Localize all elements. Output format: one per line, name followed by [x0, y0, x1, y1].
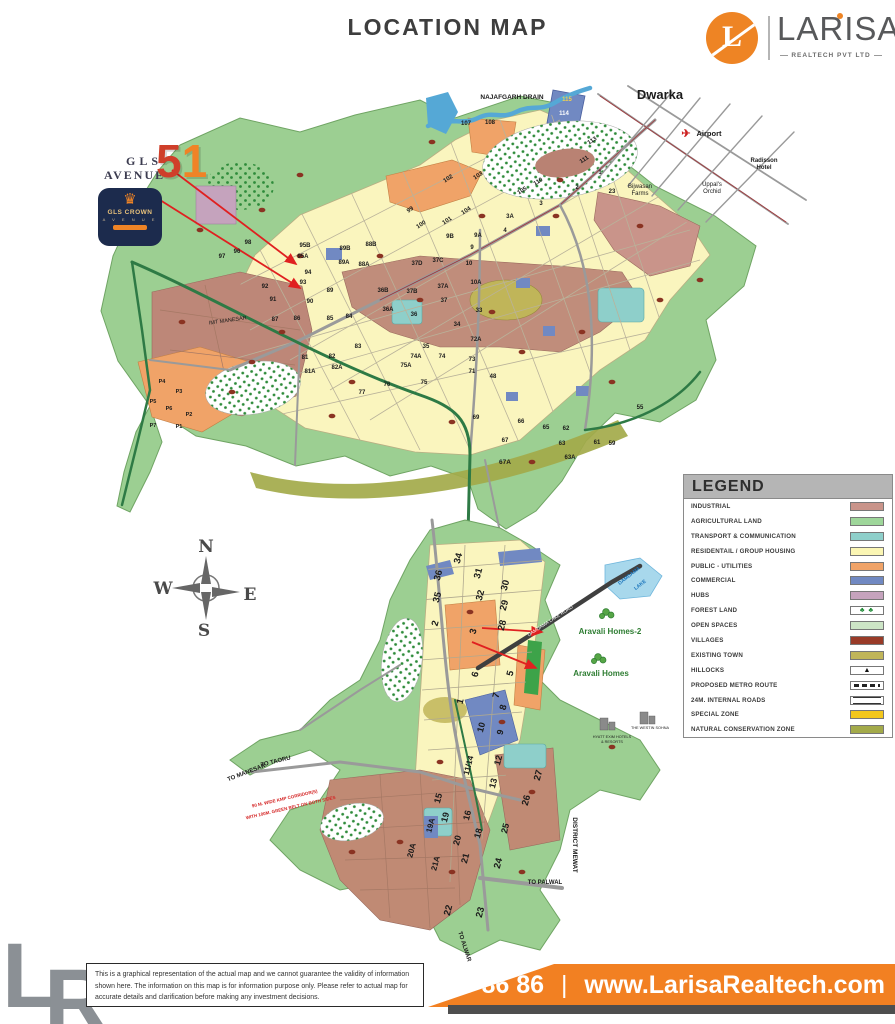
legend-row: TRANSPORT & COMMUNICATION [684, 529, 892, 544]
legend-label: TRANSPORT & COMMUNICATION [691, 533, 796, 540]
village-mark [429, 140, 436, 145]
map-label: 37B [406, 289, 418, 295]
map-label: 48 [490, 374, 497, 380]
map-label: 75 [421, 380, 428, 386]
map-label: 95B [299, 243, 311, 249]
village-mark [377, 254, 384, 259]
village-mark [437, 760, 444, 765]
map-label: 88B [365, 242, 377, 248]
map-label: 59 [609, 441, 616, 447]
legend-swatch-color [850, 502, 884, 511]
brand-tagline: REALTECH PVT LTD [791, 52, 870, 59]
map-label: 75A [400, 363, 412, 369]
crown-sub: A V E N U E [98, 217, 162, 222]
village-mark [529, 460, 536, 465]
village-mark [579, 330, 586, 335]
map-label: P6 [166, 406, 173, 412]
map-label: 90 [307, 299, 314, 305]
map-label: & RESORTS [601, 740, 623, 744]
legend-label: EXISTING TOWN [691, 652, 743, 659]
legend-swatch-color [850, 532, 884, 541]
legend-label: HUBS [691, 592, 709, 599]
crown-title: GLS CROWN [98, 209, 162, 216]
legend-row: NATURAL CONSERVATION ZONE [684, 722, 892, 737]
legend-label: PUBLIC - UTILITIES [691, 563, 752, 570]
location-map-flyer: { "header": { "title": "LOCATION MAP" },… [0, 0, 895, 1024]
map-label: 67 [502, 438, 509, 444]
map-label: 63A [564, 455, 576, 461]
map-label: 69 [473, 415, 480, 421]
contact-separator: | [561, 971, 568, 999]
legend-label: SPECIAL ZONE [691, 711, 739, 718]
map-label: Bijwasan [628, 184, 652, 190]
map-label: 76 [384, 382, 391, 388]
village-mark [609, 380, 616, 385]
map-label: S [198, 621, 210, 641]
map-label: 36 [411, 312, 418, 318]
village-mark [697, 278, 704, 283]
village-mark [657, 298, 664, 303]
map-label: 89 [327, 288, 334, 294]
legend-label: 24M. INTERNAL ROADS [691, 697, 766, 704]
map-label: 91 [270, 297, 277, 303]
village-mark [417, 298, 424, 303]
map-label: 37 [441, 298, 448, 304]
legend-swatch-color [850, 651, 884, 660]
legend-label: NATURAL CONSERVATION ZONE [691, 726, 795, 733]
map-label: 34 [454, 322, 461, 328]
map-label: 73 [469, 357, 476, 363]
map-label: 36A [382, 307, 394, 313]
legend-row: INDUSTRIAL [684, 499, 892, 514]
map-label: 72A [470, 337, 482, 343]
gls-crown-badge: ♛ GLS CROWN A V E N U E [98, 188, 162, 246]
map-label: 37A [437, 284, 449, 290]
village-mark [349, 850, 356, 855]
legend-row: OPEN SPACES [684, 618, 892, 633]
legend-label: FOREST LAND [691, 607, 737, 614]
legend-row: HILLOCKS▲ [684, 663, 892, 678]
legend-swatch-color [850, 636, 884, 645]
map-label: 23 [609, 189, 616, 195]
brand-i-dot [837, 13, 843, 19]
legend-swatch-hillock: ▲ [850, 666, 884, 675]
village-mark [479, 214, 486, 219]
map-label: 77 [359, 390, 366, 396]
map-label: 83 [355, 344, 362, 350]
legend-label: AGRICULTURAL LAND [691, 518, 762, 525]
map-label: 10 [466, 261, 473, 267]
legend-row: COMMERCIAL [684, 573, 892, 588]
map-label: P7 [150, 423, 157, 429]
legend-swatch-forest: ♣ ♣ [850, 606, 884, 615]
website-url: www.LarisaRealtech.com [584, 971, 885, 999]
map-label: P3 [176, 389, 183, 395]
legend-row: VILLAGES [684, 633, 892, 648]
village-mark [609, 745, 616, 750]
map-label: 89A [338, 260, 350, 266]
map-label: Dwarka [637, 87, 684, 102]
map-label: 37C [432, 258, 444, 264]
village-mark [329, 414, 336, 419]
map-label: 71 [469, 369, 476, 375]
map-label: P4 [159, 379, 167, 385]
map-label: Aravali Homes [573, 669, 629, 678]
map-label: 87 [272, 317, 279, 323]
legend-swatch-color [850, 621, 884, 630]
map-label: THE WESTIN SOHNA [631, 726, 669, 730]
map-label: ✈ [681, 128, 690, 140]
map-label: DISTRICT MEWAT [571, 817, 578, 873]
map-label: 115 [562, 97, 572, 103]
map-label: 96 [234, 249, 241, 255]
map-label: 86 [294, 316, 301, 322]
map-label: 9A [474, 233, 482, 239]
map-label: P1 [176, 424, 183, 430]
legend-label: OPEN SPACES [691, 622, 737, 629]
village-mark [449, 420, 456, 425]
map-label: Radisson [750, 158, 777, 164]
village-mark [297, 173, 304, 178]
gls-projects-logo: GLS AVENUE 51 ♛ GLS CROWN A V E N U E [98, 142, 208, 250]
village-mark [519, 870, 526, 875]
village-mark [557, 178, 564, 183]
map-label: P2 [186, 412, 193, 418]
map-label: 81A [304, 369, 316, 375]
map-label: 63 [559, 441, 566, 447]
map-label: 65 [543, 425, 550, 431]
map-label: E [244, 585, 257, 605]
map-label: 88A [358, 262, 370, 268]
compass-rose [172, 556, 240, 620]
village-mark [553, 214, 560, 219]
legend-swatch-color [850, 591, 884, 600]
legend-row: 24M. INTERNAL ROADS [684, 693, 892, 708]
map-label: 35 [423, 344, 430, 350]
legend-row: RESIDENTAIL / GROUP HOUSING [684, 544, 892, 559]
map-label: 67A [499, 459, 511, 466]
map-label: 3A [506, 214, 514, 220]
map-label: 66 [518, 419, 525, 425]
map-label: 92 [262, 284, 269, 290]
village-mark [519, 350, 526, 355]
village-mark [259, 208, 266, 213]
village-mark [489, 310, 496, 315]
map-label: 108 [485, 120, 496, 126]
legend-label: PROPOSED METRO ROUTE [691, 682, 778, 689]
map-label: Orchid [703, 189, 721, 195]
map-label: 33 [476, 308, 483, 314]
map-label: 62 [563, 426, 570, 432]
legend-label: RESIDENTAIL / GROUP HOUSING [691, 548, 795, 555]
legend-swatch-color [850, 517, 884, 526]
map-label: 74 [439, 354, 446, 360]
legend-swatch-color [850, 725, 884, 734]
map-label: 97 [219, 254, 226, 260]
map-label: 84 [346, 314, 353, 320]
gls-number: 51 [156, 138, 207, 184]
legend-swatch-road [850, 696, 884, 705]
village-mark [529, 790, 536, 795]
tree-icon [591, 609, 614, 664]
map-label: NAJAFGARH DRAIN [480, 94, 544, 101]
map-label: 36B [377, 288, 389, 294]
legend-row: PROPOSED METRO ROUTE [684, 678, 892, 693]
disclaimer-box: This is a graphical representation of th… [86, 963, 424, 1007]
map-label: 89B [339, 246, 351, 252]
village-mark [449, 870, 456, 875]
map-label: 94 [305, 270, 312, 276]
brand-name: LARISA [777, 10, 895, 48]
map-label: 81 [302, 355, 309, 361]
village-mark [279, 330, 286, 335]
map-label: 95A [297, 254, 309, 260]
legend-swatch-color [850, 710, 884, 719]
map-label: 93 [300, 280, 307, 286]
village-mark [349, 380, 356, 385]
legend-swatch-color [850, 547, 884, 556]
map-label: 82 [329, 354, 336, 360]
map-label: W [152, 579, 173, 599]
village-mark [229, 390, 236, 395]
map-label: 82A [331, 365, 343, 371]
village-mark [467, 610, 474, 615]
legend-swatch-color [850, 576, 884, 585]
map-label: 55 [637, 405, 644, 411]
map-label: Airport [697, 129, 723, 138]
legend-label: INDUSTRIAL [691, 503, 730, 510]
map-label: 9B [446, 234, 454, 240]
map-label: 37D [411, 261, 423, 267]
crown-pill [113, 225, 147, 230]
map-label: HYATT EXIM HOTELS [593, 735, 632, 739]
map-label: Uppal's [702, 182, 722, 188]
map-label: 107 [461, 121, 472, 127]
legend-row: PUBLIC - UTILITIES [684, 559, 892, 574]
legend-row: SPECIAL ZONE [684, 707, 892, 722]
village-mark [499, 720, 506, 725]
legend-title: LEGEND [684, 475, 892, 499]
legend-row: AGRICULTURAL LAND [684, 514, 892, 529]
legend-panel: LEGEND INDUSTRIALAGRICULTURAL LANDTRANSP… [683, 474, 893, 738]
map-label: P5 [150, 399, 157, 405]
contact-bar-shadow [448, 1005, 895, 1014]
village-mark [179, 320, 186, 325]
legend-label: VILLAGES [691, 637, 724, 644]
legend-row: FOREST LAND♣ ♣ [684, 603, 892, 618]
map-label: Farms [632, 191, 649, 197]
legend-row: EXISTING TOWN [684, 648, 892, 663]
map-label: 61 [594, 440, 601, 446]
crown-icon: ♛ [98, 191, 162, 209]
legend-swatch-metro [850, 681, 884, 690]
map-label: TO PALWAL [528, 880, 563, 886]
map-label: Aravali Homes-2 [579, 627, 642, 636]
map-label: Hotel [757, 165, 772, 171]
legend-label: COMMERCIAL [691, 577, 736, 584]
village-mark [397, 840, 404, 845]
map-label: 114 [559, 111, 569, 117]
map-label: 74A [410, 354, 422, 360]
legend-row: HUBS [684, 588, 892, 603]
legend-swatch-color [850, 562, 884, 571]
legend-label: HILLOCKS [691, 667, 724, 674]
larisa-monogram-icon: L [706, 12, 758, 64]
map-label: 98 [245, 240, 252, 246]
map-label: 10A [470, 280, 482, 286]
map-label: N [198, 537, 214, 557]
logo-divider [768, 16, 770, 60]
village-mark [249, 360, 256, 365]
larisa-logo: L LARISA REALTECH PVT LTD [698, 8, 890, 68]
map-label: 85 [327, 316, 334, 322]
village-mark [637, 224, 644, 229]
